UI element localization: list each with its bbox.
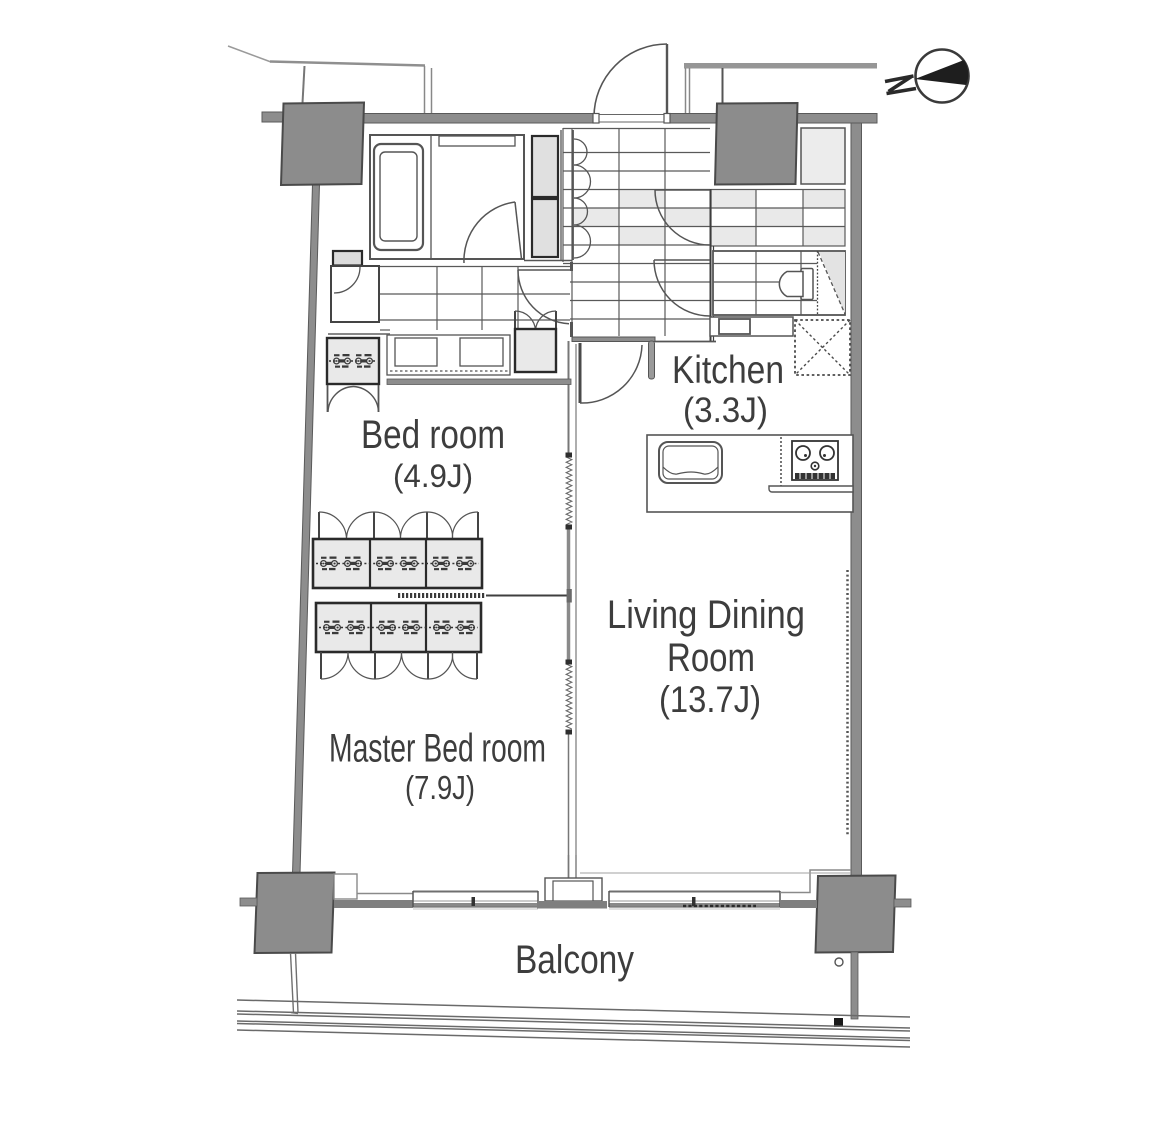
svg-text:(4.9J): (4.9J) — [393, 458, 473, 494]
svg-text:Balcony: Balcony — [515, 938, 634, 982]
svg-text:(13.7J): (13.7J) — [659, 679, 761, 720]
svg-text:Kitchen: Kitchen — [672, 349, 784, 392]
svg-text:(7.9J): (7.9J) — [405, 769, 475, 806]
svg-text:(3.3J): (3.3J) — [683, 391, 768, 430]
svg-text:Room: Room — [667, 636, 755, 680]
svg-text:Living Dining: Living Dining — [607, 593, 805, 637]
svg-text:Bed room: Bed room — [361, 413, 505, 457]
svg-text:Master Bed room: Master Bed room — [329, 727, 546, 771]
